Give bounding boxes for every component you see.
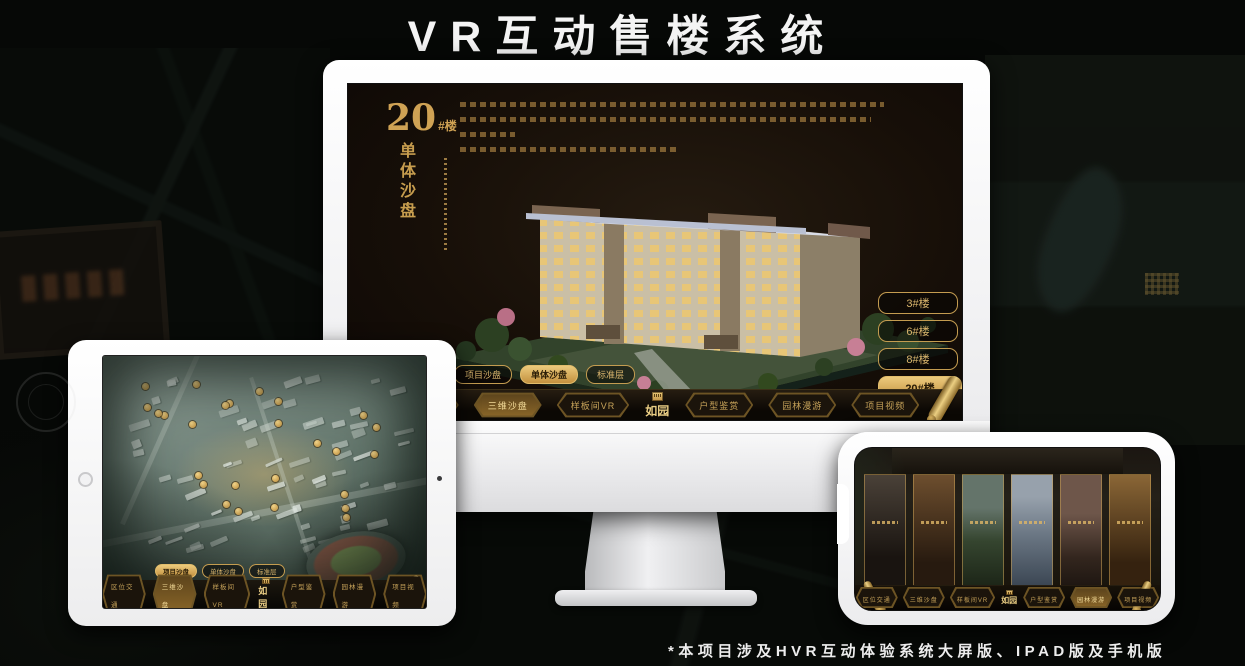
nav-item-showroom-vr[interactable]: 样板间VR [558,392,629,418]
nav-item-project-video[interactable]: 项目视频 [1118,587,1158,609]
home-button[interactable] [78,472,93,487]
gallery-panel[interactable] [913,474,955,586]
page-title: VR互动售楼系统 [0,2,1245,64]
nav-item-floorplan[interactable]: 户型鉴赏 [283,573,325,609]
phone-screen: 区位交通 三维沙盘 样板间VR 如园 户型鉴赏 园林漫游 项目视频 [854,447,1161,611]
nav-item-garden-roam[interactable]: 园林漫游 [769,392,835,418]
phone: 区位交通 三维沙盘 样板间VR 如园 户型鉴赏 园林漫游 项目视频 [838,432,1175,625]
nav-item-showroom-vr[interactable]: 样板间VR [951,587,994,609]
ipad-tablet: 项目沙盘 单体沙盘 标准层 区位交通 三维沙盘 样板间VR 如园 户型鉴赏 园林… [68,340,456,626]
monitor-stand [585,511,725,595]
nav-item-3d-sandtable[interactable]: 三维沙盘 [904,587,944,609]
tab-standard-floor[interactable]: 标准层 [249,564,285,578]
stage: VR互动售楼系统 20#楼 单体沙盘 [0,0,1245,666]
nav-item-floorplan[interactable]: 户型鉴赏 [686,392,752,418]
gallery-panel[interactable] [962,474,1004,586]
pavilion-beam [892,448,1124,474]
nav-item-location-traffic[interactable]: 区位交通 [857,587,897,609]
gallery-panel[interactable] [1109,474,1151,586]
scene-gallery [855,474,1160,586]
background-photo-collage [985,55,1245,445]
monitor-tab-row: 项目沙盘 单体沙盘 标准层 [454,365,635,384]
nav-item-3d-sandtable[interactable]: 三维沙盘 [475,392,541,418]
floor-button-3[interactable]: 3#楼 [878,292,958,314]
ruyuan-logo: 如园 [645,392,669,419]
tab-standard-floor[interactable]: 标准层 [586,365,635,384]
nav-item-garden-roam[interactable]: 园林漫游 [334,573,376,609]
ipad-screen: 项目沙盘 单体沙盘 标准层 区位交通 三维沙盘 样板间VR 如园 户型鉴赏 园林… [102,355,427,609]
gallery-panel[interactable] [1011,474,1053,586]
nav-item-project-video[interactable]: 项目视频 [852,392,918,418]
background-award-plaque [0,220,170,360]
nav-item-floorplan[interactable]: 户型鉴赏 [1024,587,1064,609]
nav-item-location-traffic[interactable]: 区位交通 [103,573,145,609]
tab-project-sandtable[interactable]: 项目沙盘 [454,365,512,384]
building-number: 20 [386,97,436,139]
ipad-nav-bar: 区位交通 三维沙盘 样板间VR 如园 户型鉴赏 园林漫游 项目视频 [103,580,426,608]
floor-button-6[interactable]: 6#楼 [878,320,958,342]
seal-icon [652,392,663,401]
phone-nav-bar: 区位交通 三维沙盘 样板间VR 如园 户型鉴赏 园林漫游 项目视频 [855,585,1160,610]
gallery-panel[interactable] [864,474,906,586]
floor-button-8[interactable]: 8#楼 [878,348,958,370]
monitor-base [555,590,757,606]
phone-notch [837,484,849,544]
building-number-suffix: #楼 [438,119,457,133]
ruyuan-logo: 如园 [258,578,273,609]
nav-item-showroom-vr[interactable]: 样板间VR [205,573,250,609]
ruyuan-logo: 如园 [1001,590,1017,606]
gallery-panel[interactable] [1060,474,1102,586]
nav-item-3d-sandtable[interactable]: 三维沙盘 [154,573,196,609]
watermark-circle [16,372,76,432]
background-map-texture [0,48,330,348]
nav-item-garden-roam[interactable]: 园林漫游 [1071,587,1111,609]
footnote: *本项目涉及HVR互动体验系统大屏版、IPAD版及手机版 [668,640,1166,661]
tab-single-sandtable[interactable]: 单体沙盘 [520,365,578,384]
nav-item-project-video[interactable]: 项目视频 [384,573,426,609]
front-camera [437,476,442,481]
